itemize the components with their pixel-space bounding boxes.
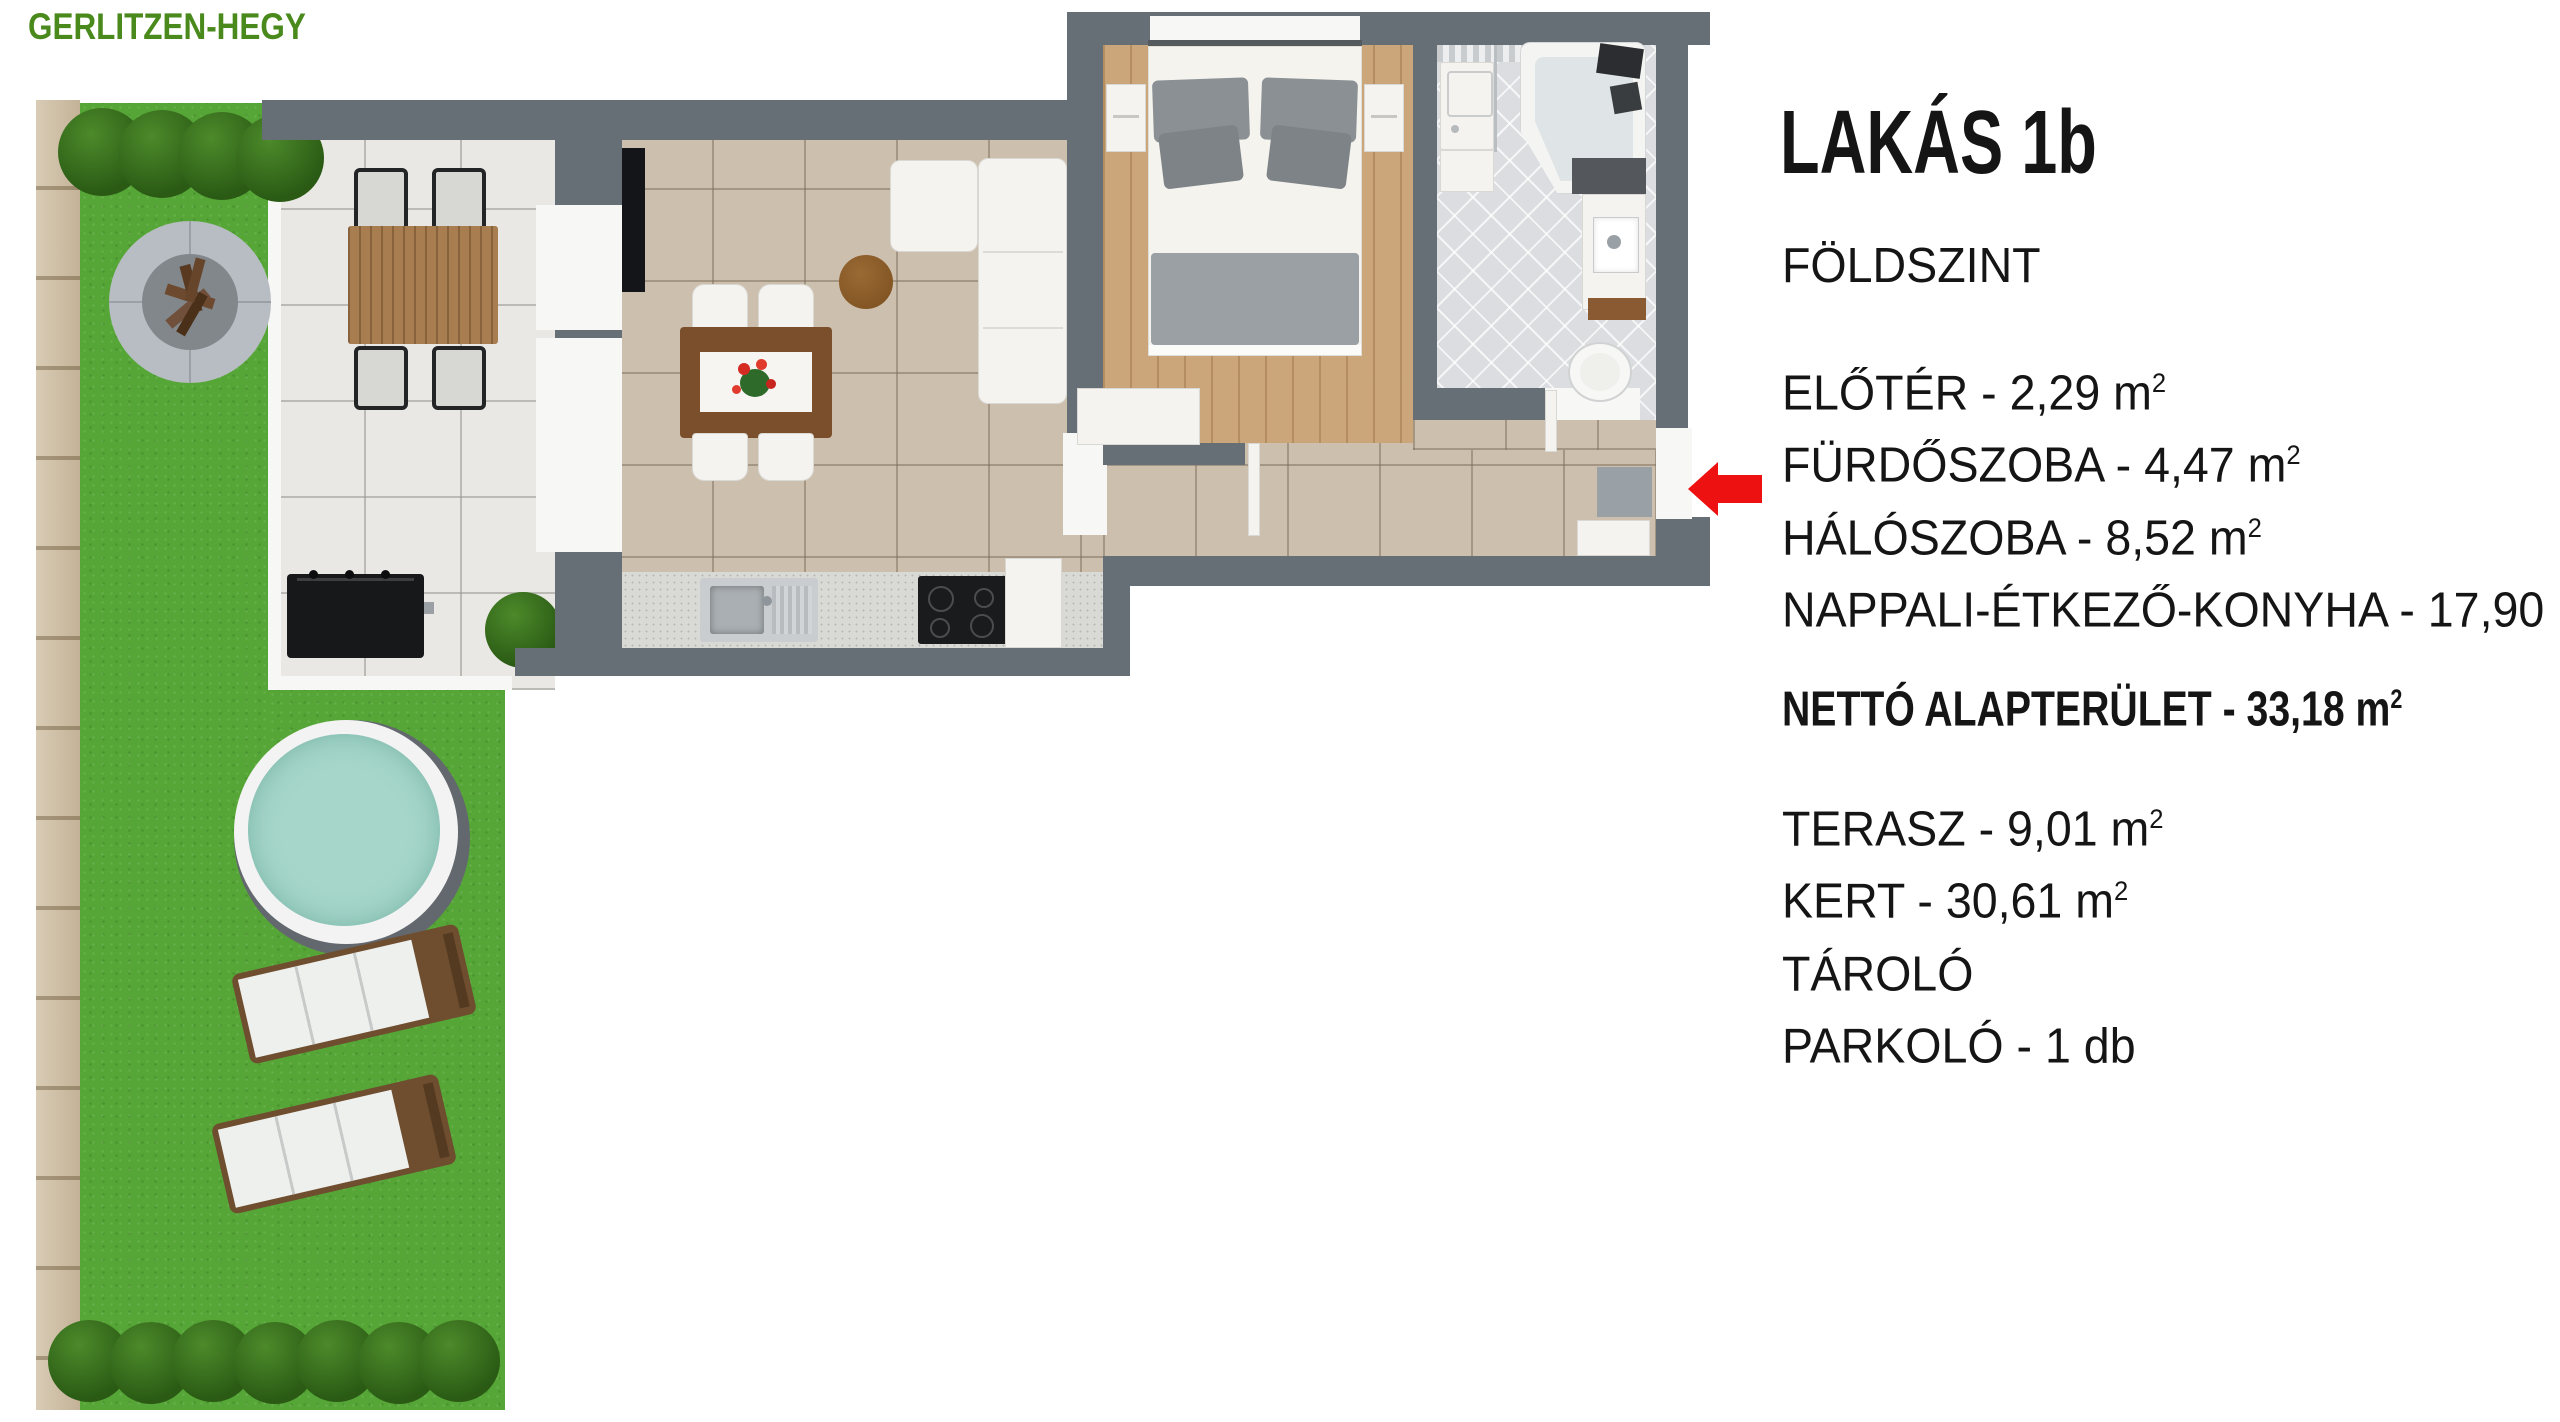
total-area-line: NETTÓ ALAPTERÜLET - 33,18 m2 [1782,668,2402,740]
grill-handle [424,602,434,614]
nightstand [1364,84,1404,152]
floor-label: FÖLDSZINT [1782,235,2041,297]
tv-cabinet [622,148,645,292]
terrace-table [348,226,498,344]
extra-line: TÁROLÓ [1782,933,2164,1005]
wall-bathroom-bottom [1437,388,1545,420]
kitchen-sink [700,578,818,642]
extra-line: PARKOLÓ - 1 db [1782,1005,2164,1077]
bed-duvet [1151,253,1359,345]
room-label: HÁLÓSZOBA - 8,52 m [1782,511,2248,565]
total-area-label: NETTÓ ALAPTERÜLET - 33,18 m [1782,682,2390,736]
grill-knob [345,570,354,579]
floor-plan-page: GERLITZEN-HEGY [0,0,2560,1422]
total-area-sup: 2 [2390,684,2402,714]
shower-set [1596,43,1644,79]
bathroom-door-leaf [1545,390,1557,452]
terrace-chair [354,346,408,410]
sofa [978,158,1067,404]
apartment-title: LAKÁS 1b [1780,92,2097,195]
terrace-chair [432,346,486,410]
vanity-drawer [1588,298,1646,320]
bedroom-window [1150,16,1360,42]
bathroom-cabinet [1440,150,1494,192]
pillow [1158,124,1244,189]
washer-lid [1447,71,1493,117]
pillow [1266,124,1352,189]
terrace-door [536,338,622,552]
wall-bottom-entry [1130,556,1710,586]
dining-chair [692,284,748,332]
info-panel: LAKÁS 1b FÖLDSZINT ELŐTÉR - 2,29 m2 FÜRD… [1778,0,2560,1422]
garden-fence [36,100,80,1410]
extra-line: KERT - 30,61 m2 [1782,860,2164,932]
room-label: FÜRDŐSZOBA - 4,47 m [1782,439,2286,493]
arrow-head [1688,462,1718,516]
toilet [1568,342,1632,402]
extras-list: TERASZ - 9,01 m2 KERT - 30,61 m2 TÁROLÓ … [1782,788,2184,1077]
bedroom-doorway [1063,433,1107,535]
sofa-chaise [890,160,978,252]
side-table [839,255,893,309]
room-line: FÜRDŐSZOBA - 4,47 m2 [1782,424,2560,496]
terrace-chair [354,168,408,232]
room-sup: 2 [2248,513,2262,543]
burner [928,586,954,612]
extra-label: KERT - 30,61 m [1782,875,2114,929]
sink-drainer [772,586,812,634]
extra-sup: 2 [2114,876,2128,906]
extra-sup: 2 [2149,804,2163,834]
towel-radiator [1437,45,1524,62]
room-sup: 2 [2286,440,2300,470]
shower-set [1610,82,1642,114]
bed-footboard [1149,345,1361,355]
sink-basin [710,586,764,634]
washer-knob [1451,125,1459,133]
room-list: ELŐTÉR - 2,29 m2 FÜRDŐSZOBA - 4,47 m2 HÁ… [1782,352,2560,641]
flower [738,363,750,375]
pool [234,720,470,956]
faucet [1607,235,1621,249]
entrance-doorway [1656,428,1692,519]
entrance-arrow-icon [1688,462,1762,516]
sofa-seam [983,251,1063,253]
bedroom-door-leaf [1248,443,1260,536]
room-label: ELŐTÉR - 2,29 m [1782,366,2152,420]
flower [766,379,776,389]
entry-hall-floor [1413,420,1656,450]
wall-bedroom-divider [1067,40,1103,433]
faucet [762,596,772,606]
kitchen-appliance [1005,558,1062,648]
terrace-edge-bottom [268,676,512,690]
pool-water [248,734,440,926]
shower-glass [1494,45,1497,152]
arrow-shaft [1716,475,1762,503]
wall-top-living [262,100,1103,140]
burner [970,614,994,638]
fire-pit [109,221,271,383]
grill-knob [381,570,390,579]
room-sup: 2 [2152,368,2166,398]
sofa-seam [983,327,1063,329]
room-line: NAPPALI-ÉTKEZŐ-KONYHA - 17,90 m2 [1782,569,2560,641]
living-window [536,205,622,330]
bush [418,1320,500,1402]
room-line: HÁLÓSZOBA - 8,52 m2 [1782,497,2560,569]
bed [1148,46,1362,356]
wardrobe [1077,388,1200,445]
vanity [1582,194,1646,310]
shoe-cabinet [1577,520,1650,556]
room-line: ELŐTÉR - 2,29 m2 [1782,352,2560,424]
dining-chair [692,433,748,481]
dining-chair [758,433,814,481]
extra-label: TERASZ - 9,01 m [1782,802,2149,856]
burner [974,588,994,608]
grill [287,574,424,658]
wall-bottom-kitchen [515,648,1130,676]
burner [930,618,950,638]
nightstand [1106,84,1146,152]
wall-right-exterior [1656,12,1688,430]
flower [756,359,767,370]
toilet-seat [1580,353,1620,391]
wall-bedroom-bottom [1103,443,1245,465]
wall-bathroom-divider [1413,45,1437,420]
nightstand-drawer [1113,115,1139,118]
nightstand-drawer [1371,115,1397,118]
dining-table [680,327,832,438]
washing-machine [1440,62,1494,150]
cooktop [918,576,1008,644]
extra-label: TÁROLÓ [1782,947,1973,1001]
extra-line: TERASZ - 9,01 m2 [1782,788,2164,860]
extra-label: PARKOLÓ - 1 db [1782,1019,2136,1073]
floor-plan [0,0,1780,1422]
dining-chair [758,284,814,332]
room-label: NAPPALI-ÉTKEZŐ-KONYHA - 17,90 m [1782,583,2560,637]
terrace-chair [432,168,486,232]
grill-knob [309,570,318,579]
bath-shelf [1572,158,1646,194]
flower [732,385,741,394]
entry-step [1597,467,1652,517]
